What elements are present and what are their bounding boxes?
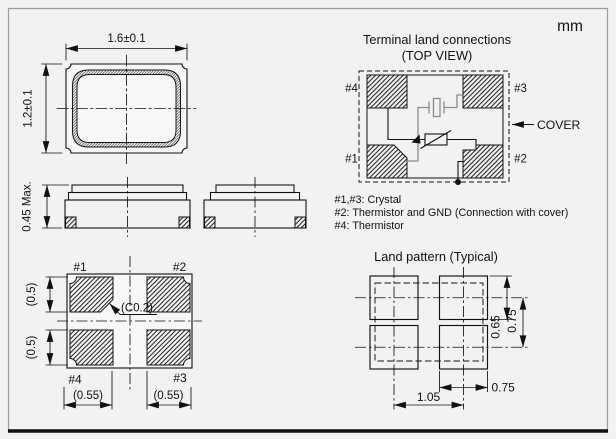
pad-2: [147, 277, 190, 312]
pad-height-dim-top: (0.5): [26, 283, 38, 307]
pad-4: [70, 330, 113, 365]
note-line-2: #2: Thermistor and GND (Connection with …: [335, 207, 569, 219]
pad-4-label: #4: [345, 83, 358, 95]
pad-width-dim-right: (0.55): [153, 390, 183, 402]
gnd-connection-line: [458, 162, 463, 183]
thermistor-lead-to-pad2: [447, 140, 476, 146]
top-view: 1.6±0.1 1.2±0.1: [23, 33, 197, 164]
pad-width-dim-left: (0.55): [73, 390, 103, 402]
pad-3-label: #3: [514, 83, 527, 95]
terminal-left: [66, 217, 77, 228]
terminal-right: [295, 217, 306, 228]
land-pattern-title: Land pattern (Typical): [374, 249, 498, 264]
technical-drawing: mm 1.6±0.1 1.2±0.1 0.45 Max.: [0, 0, 616, 439]
terminal-left: [205, 217, 216, 228]
pad-height-dim: 0.65: [489, 315, 503, 339]
package-outline-dashed: [375, 283, 483, 361]
pad-2: [463, 145, 503, 178]
crystal-symbol: [407, 95, 463, 161]
unit-label: mm: [557, 18, 583, 35]
pad-1-label: #1: [345, 154, 358, 166]
pad-2-label: #2: [514, 154, 527, 166]
thermistor-symbol: [388, 108, 476, 149]
pad-3-label: #3: [173, 371, 187, 385]
top-view-width-dim: 1.6±0.1: [107, 33, 145, 45]
pad-height-dim-bottom: (0.5): [26, 336, 38, 360]
chamfer-dim: (C0.2): [121, 303, 153, 315]
pad-3: [463, 75, 503, 108]
row-pitch-dim: 0.75: [505, 309, 519, 333]
side-view-side: [204, 177, 306, 237]
column-pitch-dim: 1.05: [417, 390, 441, 404]
pad-width-dim: 0.75: [492, 381, 516, 395]
section-title: Terminal land connections: [363, 32, 511, 47]
bottom-view: #1 #2 #4 #3 (0.5) (0.5) (C0.2) (0.55) (0…: [26, 256, 202, 410]
land-pattern: Land pattern (Typical) 0.65 0.75 0.75 1.…: [355, 249, 528, 410]
drawing-sheet: mm 1.6±0.1 1.2±0.1 0.45 Max.: [0, 0, 616, 439]
section-subtitle: (TOP VIEW): [402, 48, 473, 63]
top-view-height-dim: 1.2±0.1: [23, 89, 35, 127]
note-line-3: #4: Thermistor: [335, 220, 405, 232]
pad-1-label: #1: [73, 260, 87, 274]
pad-1: [367, 145, 407, 178]
cover-label: COVER: [537, 118, 581, 132]
pad-2-label: #2: [173, 260, 187, 274]
side-view-front: 0.45 Max.: [22, 177, 191, 237]
note-line-1: #1,#3: Crystal: [335, 194, 402, 206]
gnd-dot: [455, 179, 461, 185]
side-view-height-dim: 0.45 Max.: [22, 181, 34, 232]
terminal-right: [179, 217, 190, 228]
pad-3: [147, 330, 190, 365]
terminal-land-connections: Terminal land connections (TOP VIEW) #4 …: [335, 32, 581, 232]
pad-4: [367, 75, 407, 108]
crystal-lead-to-pad3: [444, 95, 463, 108]
crystal-plate: [434, 99, 441, 117]
pad-4-label: #4: [68, 373, 82, 387]
